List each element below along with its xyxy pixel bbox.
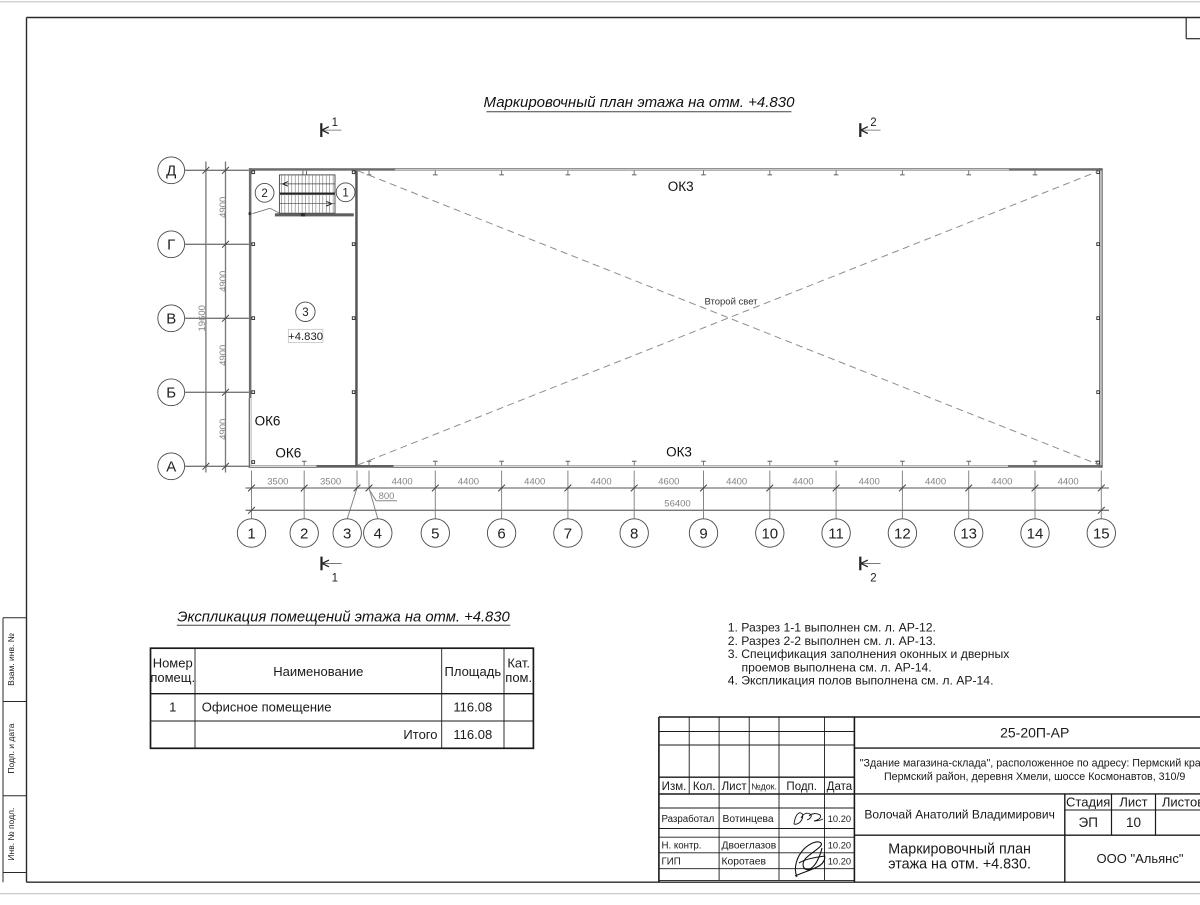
svg-text:13: 13 — [960, 525, 977, 542]
svg-text:Второй свет: Второй свет — [704, 297, 758, 308]
svg-text:Волочай Анатолий Владимирович: Волочай Анатолий Владимирович — [864, 808, 1055, 822]
svg-text:Разработал: Разработал — [662, 814, 715, 825]
svg-text:4900: 4900 — [218, 419, 229, 440]
svg-text:Кол.: Кол. — [693, 781, 716, 793]
svg-text:пом.: пом. — [505, 670, 532, 685]
svg-text:Подп.: Подп. — [786, 781, 817, 793]
svg-text:ГИП: ГИП — [662, 856, 681, 867]
svg-text:7: 7 — [564, 525, 572, 542]
svg-text:4400: 4400 — [859, 477, 880, 488]
svg-text:Экспликация помещений этажа на: Экспликация помещений этажа на отм. +4.8… — [177, 610, 510, 626]
svg-text:Б: Б — [166, 385, 176, 402]
svg-text:+4.830: +4.830 — [288, 331, 323, 343]
svg-text:Подп. и дата: Подп. и дата — [6, 723, 16, 773]
svg-text:25-20П-АР: 25-20П-АР — [1000, 724, 1069, 740]
svg-text:5: 5 — [431, 525, 439, 542]
svg-text:4400: 4400 — [726, 477, 747, 488]
svg-text:Лист: Лист — [1119, 795, 1147, 810]
svg-text:Вотинцева: Вотинцева — [723, 814, 774, 825]
svg-text:10.20: 10.20 — [828, 814, 851, 824]
svg-text:Коротаев: Коротаев — [722, 856, 767, 867]
svg-text:2: 2 — [870, 117, 876, 129]
svg-text:4900: 4900 — [218, 345, 229, 366]
svg-text:4400: 4400 — [590, 477, 611, 488]
svg-text:9: 9 — [699, 525, 707, 542]
svg-text:Н. контр.: Н. контр. — [662, 841, 702, 852]
svg-text:ЭП: ЭП — [1078, 815, 1097, 830]
svg-text:4900: 4900 — [218, 271, 229, 292]
svg-text:№док.: №док. — [751, 782, 777, 792]
svg-text:10: 10 — [761, 525, 778, 542]
svg-text:4400: 4400 — [524, 477, 545, 488]
svg-text:Офисное помещение: Офисное помещение — [202, 700, 332, 715]
svg-text:10.20: 10.20 — [828, 841, 851, 851]
svg-text:4. Экспликация полов выполнена: 4. Экспликация полов выполнена см. л. АР… — [728, 674, 994, 688]
svg-text:ОК3: ОК3 — [668, 179, 694, 194]
svg-text:10: 10 — [1126, 815, 1141, 830]
svg-text:8: 8 — [630, 525, 638, 542]
svg-text:Д: Д — [166, 163, 176, 180]
svg-text:А: А — [166, 459, 176, 476]
svg-text:3500: 3500 — [320, 477, 341, 488]
svg-text:Маркировочный план этажа на от: Маркировочный план этажа на отм. +4.830 — [484, 94, 796, 111]
svg-text:ОК6: ОК6 — [255, 414, 281, 429]
svg-text:"Здание магазина-склада", расп: "Здание магазина-склада", расположенное … — [860, 758, 1200, 770]
svg-text:Г: Г — [167, 237, 175, 254]
svg-text:6: 6 — [497, 525, 505, 542]
svg-text:12: 12 — [894, 525, 911, 542]
svg-text:2. Разрез 2-2 выполнен см. л.: 2. Разрез 2-2 выполнен см. л. АР-13. — [728, 634, 936, 648]
svg-text:800: 800 — [379, 491, 395, 502]
svg-text:15: 15 — [1093, 525, 1110, 542]
svg-text:10.20: 10.20 — [828, 856, 851, 866]
svg-text:Кат.: Кат. — [507, 656, 530, 671]
svg-text:3. Спецификация заполнения око: 3. Спецификация заполнения оконных и две… — [728, 647, 1010, 661]
svg-text:Итого: Итого — [403, 727, 437, 742]
svg-text:Взам. инв. №: Взам. инв. № — [6, 633, 16, 686]
svg-text:56400: 56400 — [664, 498, 690, 509]
svg-text:этажа на отм. +4.830.: этажа на отм. +4.830. — [888, 857, 1031, 873]
svg-text:1: 1 — [332, 117, 338, 129]
svg-text:4400: 4400 — [392, 477, 413, 488]
svg-text:14: 14 — [1027, 525, 1044, 542]
svg-text:Наименование: Наименование — [273, 664, 363, 679]
svg-text:Площадь: Площадь — [445, 664, 502, 679]
svg-text:3: 3 — [343, 525, 351, 542]
svg-text:Стадия: Стадия — [1066, 795, 1110, 810]
svg-text:В: В — [166, 311, 176, 328]
svg-text:1: 1 — [169, 700, 176, 715]
svg-text:4400: 4400 — [925, 477, 946, 488]
svg-text:Инв. № подл.: Инв. № подл. — [6, 808, 16, 861]
svg-text:ОК6: ОК6 — [275, 446, 301, 461]
svg-text:3: 3 — [302, 307, 308, 319]
svg-text:2: 2 — [261, 188, 267, 200]
svg-text:1: 1 — [247, 525, 255, 542]
svg-text:19600: 19600 — [197, 305, 208, 331]
svg-text:2: 2 — [300, 525, 308, 542]
svg-text:116.08: 116.08 — [453, 700, 492, 715]
svg-text:ОК3: ОК3 — [666, 445, 692, 460]
svg-text:Дата: Дата — [827, 781, 853, 793]
svg-text:ООО "Альянс": ООО "Альянс" — [1097, 851, 1184, 866]
svg-text:Листов: Листов — [1162, 795, 1200, 810]
svg-text:проемов выполнена см. л. АР-14: проемов выполнена см. л. АР-14. — [742, 660, 932, 674]
svg-text:2: 2 — [870, 573, 876, 585]
svg-text:1: 1 — [332, 573, 338, 585]
svg-text:1. Разрез 1-1 выполнен см. л.: 1. Разрез 1-1 выполнен см. л. АР-12. — [728, 621, 936, 635]
svg-text:4400: 4400 — [1058, 477, 1079, 488]
svg-text:4900: 4900 — [218, 197, 229, 218]
svg-text:Лист: Лист — [722, 781, 748, 793]
svg-text:4600: 4600 — [658, 477, 679, 488]
svg-text:1: 1 — [342, 187, 348, 199]
svg-text:Пермский район, деревня Хмели,: Пермский район, деревня Хмели, шоссе Кос… — [884, 771, 1185, 783]
svg-text:Двоеглазов: Двоеглазов — [722, 841, 777, 852]
svg-text:Номер: Номер — [153, 656, 193, 671]
svg-text:4400: 4400 — [792, 477, 813, 488]
svg-text:116.08: 116.08 — [453, 727, 492, 742]
svg-text:11: 11 — [828, 525, 844, 542]
svg-text:помещ.: помещ. — [150, 670, 195, 685]
svg-text:3500: 3500 — [267, 477, 288, 488]
svg-text:4: 4 — [374, 525, 382, 542]
svg-text:4400: 4400 — [458, 477, 479, 488]
svg-text:Изм.: Изм. — [662, 781, 687, 793]
svg-text:Маркировочный план: Маркировочный план — [888, 842, 1031, 858]
svg-text:4400: 4400 — [991, 477, 1012, 488]
